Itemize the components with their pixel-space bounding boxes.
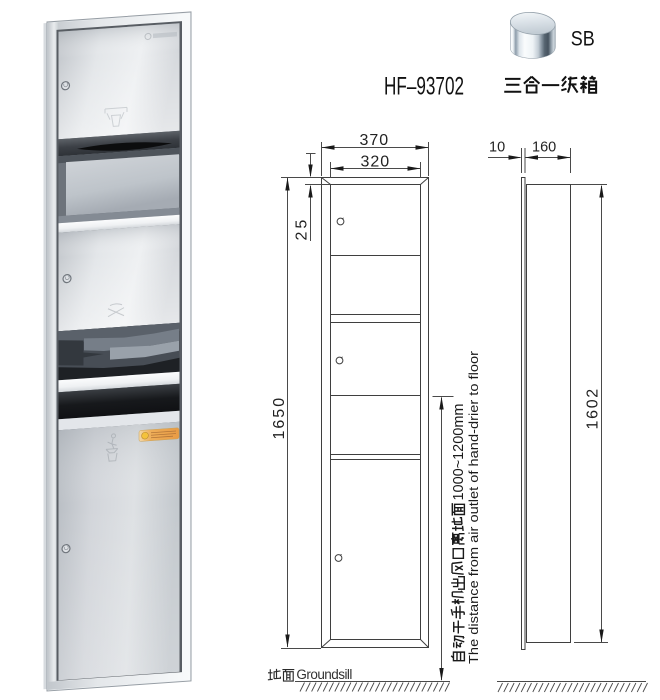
svg-text:The distance from air outlet o: The distance from air outlet of hand-dri…: [466, 350, 481, 664]
svg-text:HF–93702: HF–93702: [384, 73, 464, 101]
svg-text:160: 160: [532, 140, 556, 156]
svg-text:320: 320: [361, 154, 391, 171]
svg-text:1650: 1650: [271, 396, 288, 440]
svg-text:Groundsill: Groundsill: [296, 667, 352, 682]
svg-text:1000~1200mm: 1000~1200mm: [451, 404, 467, 501]
svg-text:10: 10: [489, 140, 505, 156]
svg-text:1602: 1602: [585, 387, 602, 429]
svg-text:370: 370: [360, 132, 390, 149]
svg-text:SB: SB: [571, 27, 595, 51]
svg-text:25: 25: [294, 217, 311, 241]
